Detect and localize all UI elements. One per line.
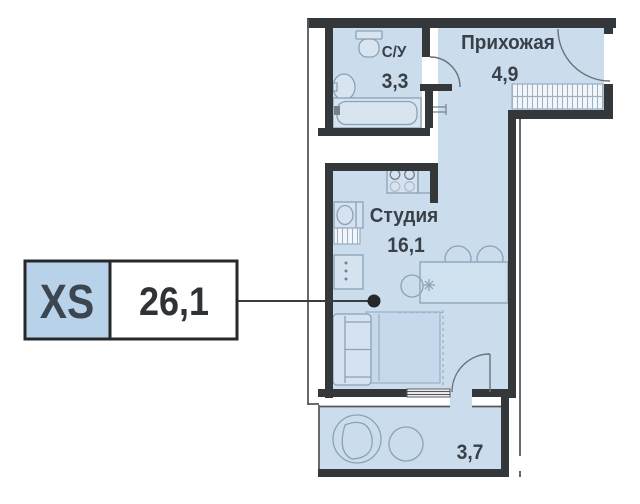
- floor-plan-stage: С/У 3,3 Прихожая 4,9 Студия 16,1 3,7 XS …: [0, 0, 640, 499]
- wardrobe: [512, 84, 603, 109]
- dining-table: [420, 262, 508, 303]
- refrigerator: [334, 255, 363, 289]
- leader-dot: [368, 295, 381, 308]
- unit-area-value: 26,1: [139, 280, 209, 324]
- floor-plan[interactable]: С/У 3,3 Прихожая 4,9 Студия 16,1 3,7 XS …: [0, 0, 640, 499]
- toilet: [356, 31, 382, 57]
- room-area-studio: 16,1: [387, 234, 425, 257]
- unit-type-label: XS: [40, 276, 94, 329]
- room-label-bathroom: С/У: [382, 44, 407, 61]
- bathtub: [333, 98, 421, 128]
- room-label-studio: Студия: [370, 205, 438, 228]
- sofa: [333, 314, 371, 385]
- room-area-balcony: 3,7: [457, 441, 484, 464]
- room-corridor: [438, 110, 508, 171]
- room-area-hallway: 4,9: [492, 63, 519, 86]
- room-label-hallway: Прихожая: [461, 32, 555, 55]
- bathroom-sink: [333, 74, 355, 100]
- room-area-bathroom: 3,3: [382, 70, 409, 93]
- window: [407, 389, 450, 397]
- bed: [366, 310, 443, 385]
- kitchen-counter: [334, 228, 360, 244]
- kitchen-sink: [334, 202, 363, 228]
- unit-card[interactable]: XS 26,1: [25, 261, 237, 339]
- balcony-doorway-floor: [450, 389, 472, 408]
